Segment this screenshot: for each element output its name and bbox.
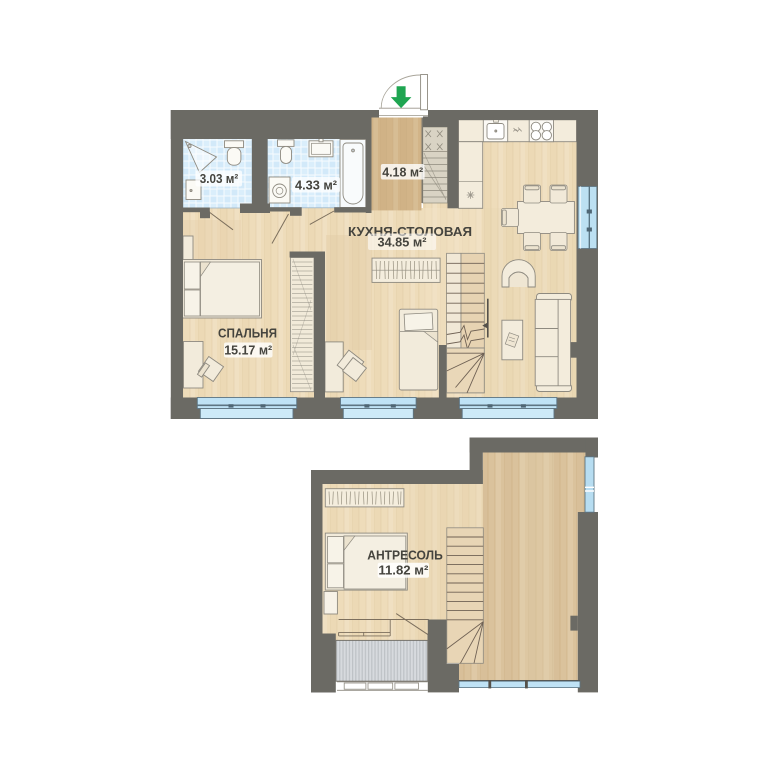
- svg-text:15.17 м²: 15.17 м²: [224, 343, 272, 357]
- svg-text:3.03 м²: 3.03 м²: [200, 172, 239, 186]
- svg-text:СПАЛЬНЯ: СПАЛЬНЯ: [218, 327, 277, 341]
- svg-text:11.82 м²: 11.82 м²: [378, 564, 428, 578]
- svg-text:АНТРЕСОЛЬ: АНТРЕСОЛЬ: [367, 548, 443, 562]
- svg-text:4.33 м²: 4.33 м²: [295, 178, 337, 192]
- svg-text:4.18 м²: 4.18 м²: [382, 165, 423, 179]
- svg-text:34.85 м²: 34.85 м²: [378, 235, 427, 249]
